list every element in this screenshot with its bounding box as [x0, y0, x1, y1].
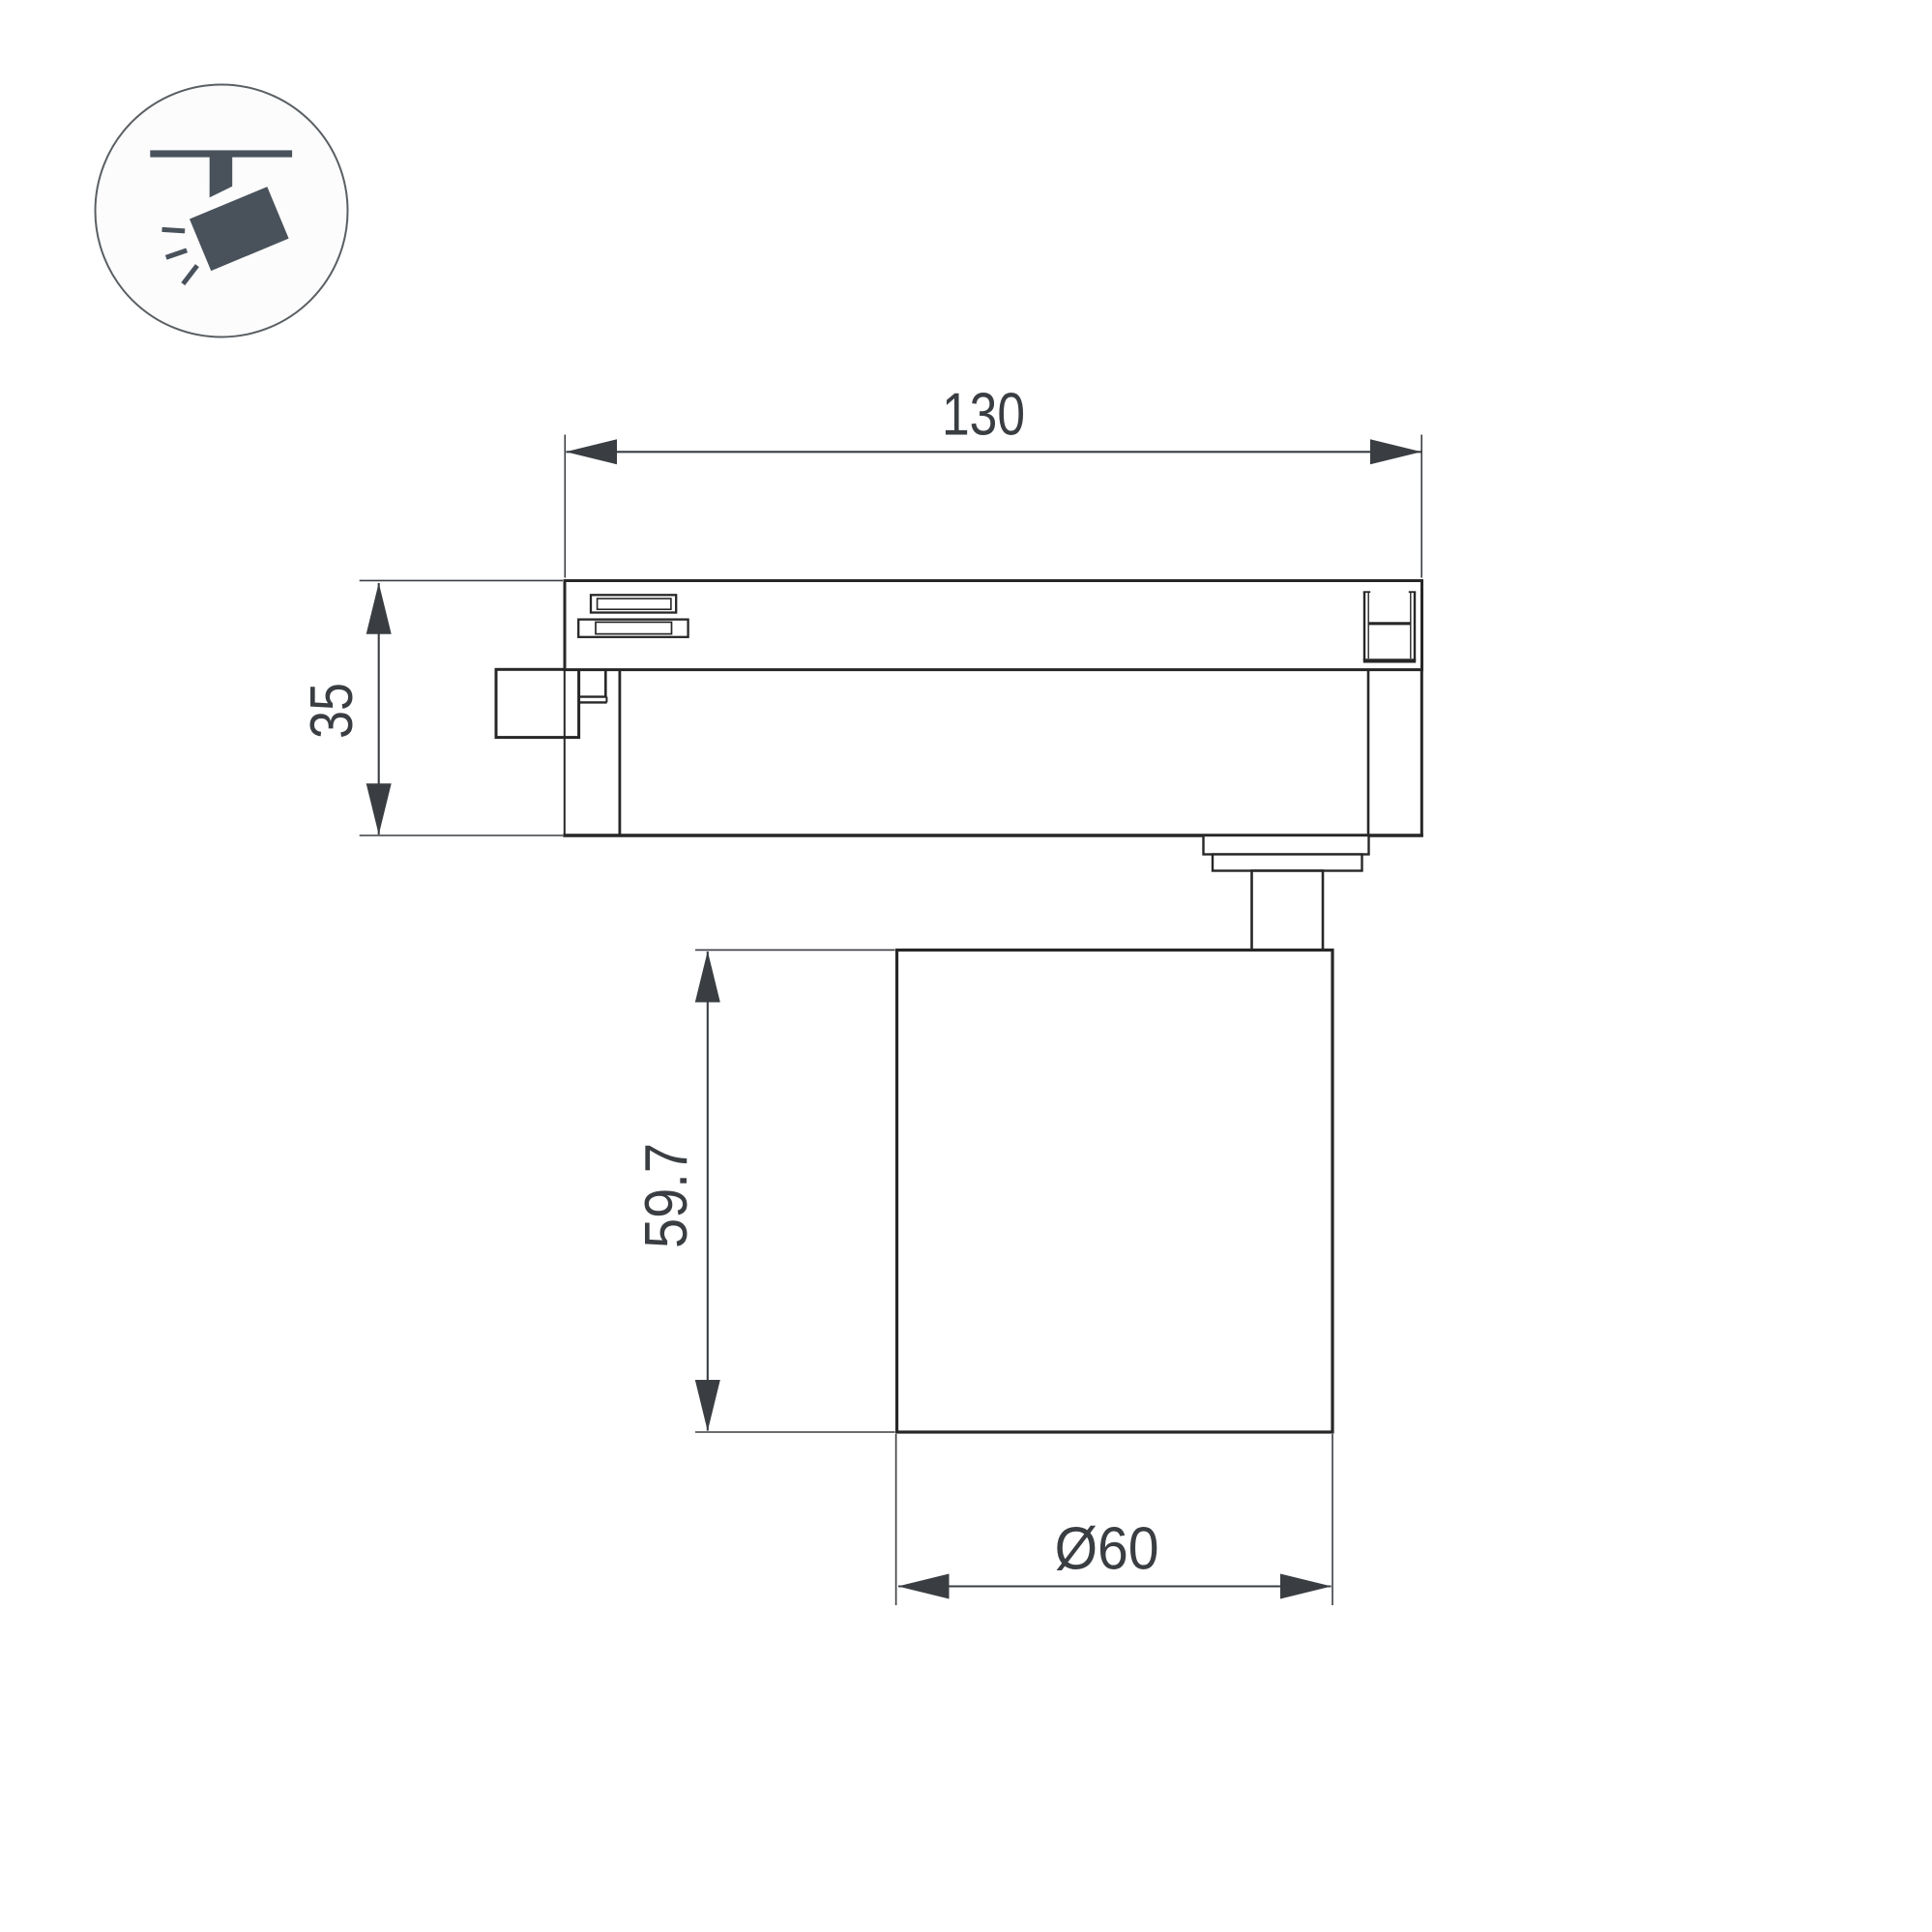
svg-text:35: 35	[298, 683, 366, 739]
svg-text:59.7: 59.7	[632, 1143, 700, 1248]
svg-text:130: 130	[942, 381, 1025, 449]
svg-text:Ø60: Ø60	[1055, 1515, 1159, 1583]
